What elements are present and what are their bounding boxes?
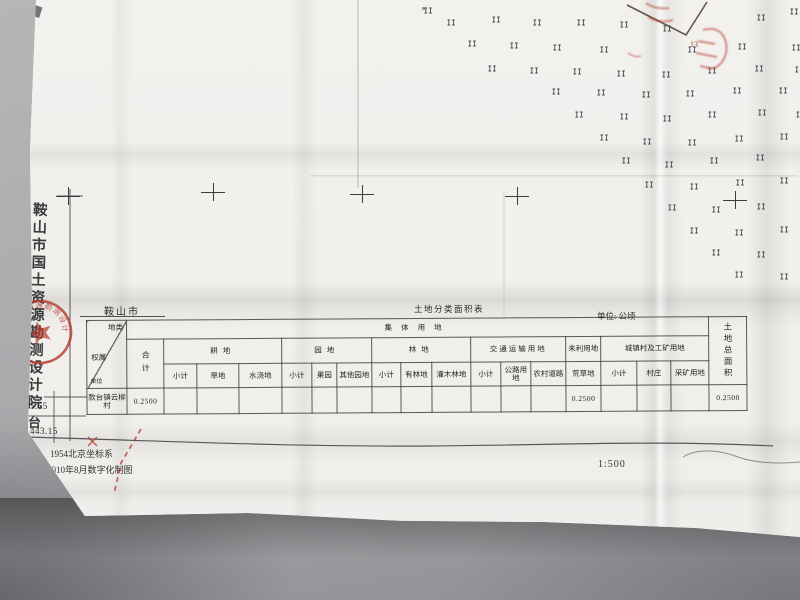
grass-symbol-icon: II [668,204,677,213]
subheader: 荒草地 [566,361,601,385]
subheader: 小计 [372,363,401,387]
grass-symbol-icon: II [622,157,631,166]
header-total-area: 土地总面积 [709,316,747,384]
paper-mark [31,5,42,18]
grass-symbol-icon: II [688,139,697,148]
value-cell [637,385,671,411]
grass-symbol-icon: II [533,19,542,28]
subheader: 其他园地 [337,363,372,387]
grass-symbol-icon: II [577,19,586,28]
grass-symbol-icon: II [597,89,606,98]
grass-symbol-icon: II [757,14,766,23]
subheader: 采矿用地 [671,361,709,385]
grass-symbol-icon: II [665,161,674,170]
grid-northing-label: 4575.65 [15,401,48,411]
grass-symbol-icon: II [758,109,767,118]
value-cell [337,387,372,413]
grass-symbol-icon: II [424,7,433,16]
grass-symbol-icon: II [708,67,717,76]
coordinate-system-note: 1954北京坐标系 [50,447,113,460]
grass-symbol-icon: II [575,111,584,120]
grid-cross-icon [201,183,225,201]
corner-label-unit: 单位 [90,379,102,385]
grass-symbol-icon: II [710,157,719,166]
grass-symbol-icon: II [573,68,582,77]
grid-cross-icon [350,185,374,203]
grass-symbol-icon: II [688,46,697,55]
subheader: 旱地 [197,364,239,388]
corner-header-cell: 地类 权属 单位 [87,320,127,388]
fold-crease [310,175,798,178]
grass-symbol-icon: II [686,90,695,99]
grass-symbol-icon: II [600,134,609,143]
value-cell [432,386,471,412]
grass-symbol-icon: II [708,111,717,120]
grass-symbol-icon: II [792,44,800,53]
grass-symbol-icon: II [552,88,561,97]
grass-symbol-icon: II [468,40,477,49]
grass-symbol-icon: II [790,8,799,17]
grass-symbol-icon: II [780,226,789,235]
value-cell [671,385,709,411]
production-note: 2010年8月数字化制图 [47,463,133,476]
header-unused: 未利用地 [566,336,601,361]
grass-symbol-icon: II [488,65,497,74]
header-transport: 交通运输用地 [471,337,566,363]
subheader: 小计 [601,361,637,385]
region-label: 鞍山市 [104,303,140,318]
fold-crease [503,190,505,316]
value-cell [601,385,637,411]
value-cell [239,387,282,413]
subheader: 有林地 [401,362,432,386]
map-scale: 1:500 [598,459,626,470]
grass-symbol-icon: II [663,115,672,124]
value-cell [164,388,197,414]
grass-symbol-icon: II [645,181,654,190]
grass-symbol-icon: II [620,113,629,122]
red-stamp-fragment [0,424,11,454]
photographed-survey-sheet: IIIIIIIIIIIIIIIIIIIIIIIIIIIIIIIIIIIIIIII… [0,0,800,600]
header-sum: 合计 [127,339,164,388]
subheader: 果园 [312,363,337,387]
grass-symbol-icon: II [553,44,562,53]
value-cell [197,388,239,414]
grass-symbol-icon: II [690,227,699,236]
grass-symbol-icon: II [780,133,789,142]
crease-line [683,451,800,463]
grass-symbol-icon: II [600,46,609,55]
header-settlement-industrial: 城镇村及工矿用地 [601,336,709,362]
value-cell [282,387,312,413]
grass-symbol-icon: II [447,19,456,28]
value-cell [312,387,337,413]
grass-symbol-icon: II [510,42,519,51]
fold-crease [357,0,359,188]
header-cultivated: 耕地 [164,338,282,364]
grass-symbol-icon: II [735,229,744,238]
table-title: 土地分类面积表 [414,303,484,315]
seal-star-icon [25,318,55,346]
grass-symbol-icon: II [643,138,652,147]
subheader: 公路用地 [501,362,531,386]
line-overlay: 13 [0,0,800,600]
grass-symbol-icon: II [620,21,629,30]
grass-symbol-icon: II [795,66,800,75]
official-seal: 鞍山市国土资源勘测设计院 [0,290,90,382]
grass-symbol-icon: II [779,87,788,96]
subheader: 村庄 [637,361,671,385]
value-cell [471,386,501,412]
corner-label-ownership: 权属 [91,354,106,362]
grass-symbol-icon: II [662,71,671,80]
grid-cross-icon [505,187,529,205]
corner-label-landclass: 地类 [108,324,123,332]
grass-symbol-icon: II [757,203,766,212]
grid-cross-icon [723,191,747,209]
subheader: 水浇地 [239,363,282,387]
grass-symbol-icon: II [712,249,721,258]
grass-symbol-icon: II [738,43,747,52]
header-garden: 园地 [282,338,372,364]
grass-symbol-icon: II [735,271,744,280]
table-row: 款台镇云柳村 0.2500 0.2500 [87,384,747,414]
header-forest: 林地 [372,337,471,363]
grass-symbol-icon: II [690,183,699,192]
owner-village-cell: 款台镇云柳村 [87,388,127,414]
subheader: 小计 [471,362,501,386]
value-cell [401,386,432,412]
grass-symbol-icon: II [796,111,800,120]
grass-symbol-icon: II [530,67,539,76]
value-cell [501,386,531,412]
grass-symbol-icon: II [663,25,672,34]
red-stamp-fragment [628,3,727,69]
grass-symbol-icon: II [735,135,744,144]
grass-symbol-icon: II [755,65,764,74]
subheader: 小计 [164,364,197,388]
grid-easting-label: 443.15 [30,426,58,436]
grass-symbol-icon: II [617,70,626,79]
subheader: 农村道路 [531,362,566,386]
value-cell: 0.2500 [709,384,747,410]
grass-symbol-icon: II [757,251,766,260]
grass-symbol-icon: II [733,87,742,96]
land-classification-table: 地类 权属 单位 集体用地 土地总面积 合计 耕地 园地 林地 交通运输用地 未… [86,316,751,415]
value-cell [372,387,401,413]
value-cell [531,386,566,412]
value-cell: 0.2500 [127,388,164,414]
grid-cross-icon [56,187,80,205]
subheader: 灌木林地 [432,362,471,386]
grass-symbol-icon: II [780,273,789,282]
grass-symbol-icon: II [642,91,651,100]
value-cell: 0.2500 [566,385,601,411]
grass-symbol-icon: II [736,179,745,188]
grass-symbol-icon: II [712,206,721,215]
grass-symbol-icon: II [780,177,789,186]
red-dashed-boundary [88,429,141,494]
grass-symbol-icon: II [492,16,501,25]
subheader: 小计 [282,363,312,387]
grass-symbol-icon: II [756,154,765,163]
paper-sheet: IIIIIIIIIIIIIIIIIIIIIIIIIIIIIIIIIIIIIIII… [0,0,800,600]
